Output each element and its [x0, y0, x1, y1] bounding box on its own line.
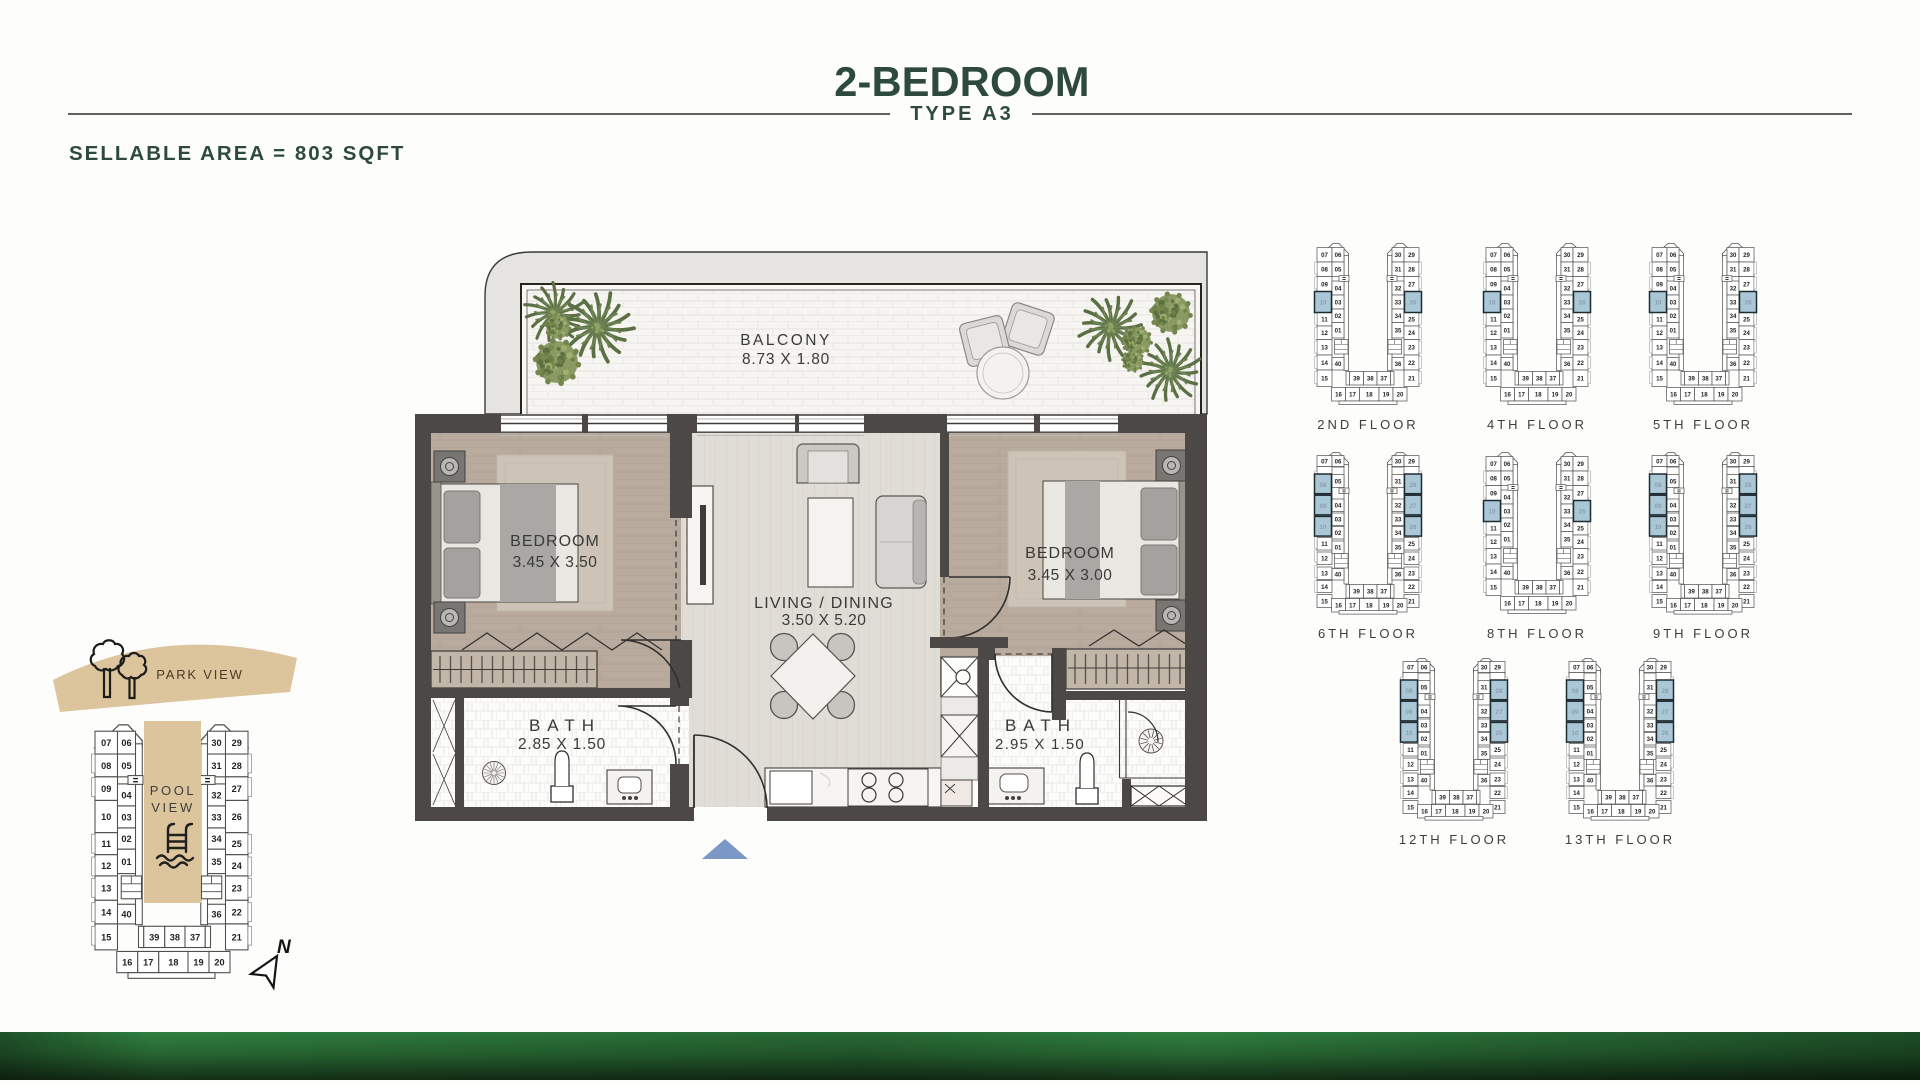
svg-text:BATH: BATH [1005, 716, 1077, 735]
svg-text:2ND FLOOR: 2ND FLOOR [1317, 417, 1418, 432]
svg-text:28: 28 [1495, 688, 1503, 695]
svg-text:26: 26 [1409, 300, 1417, 307]
svg-text:3.45 X 3.00: 3.45 X 3.00 [1028, 567, 1113, 584]
svg-text:10: 10 [1488, 509, 1496, 516]
svg-text:LIVING / DINING: LIVING / DINING [754, 595, 894, 612]
svg-text:28: 28 [1409, 482, 1417, 489]
svg-text:09: 09 [1319, 503, 1327, 510]
svg-text:8TH FLOOR: 8TH FLOOR [1487, 626, 1587, 641]
svg-text:8.73 X 1.80: 8.73 X 1.80 [742, 351, 830, 368]
svg-text:POOL: POOL [150, 783, 197, 798]
svg-text:6TH FLOOR: 6TH FLOOR [1318, 626, 1418, 641]
svg-text:10: 10 [1571, 730, 1579, 737]
svg-text:3.45 X 3.50: 3.45 X 3.50 [513, 554, 598, 571]
svg-text:26: 26 [1661, 730, 1669, 737]
svg-text:BEDROOM: BEDROOM [1025, 545, 1115, 562]
svg-text:10: 10 [1654, 524, 1662, 531]
svg-text:2-BEDROOM: 2-BEDROOM [834, 58, 1089, 105]
svg-text:26: 26 [1744, 300, 1752, 307]
svg-text:09: 09 [1571, 709, 1579, 716]
svg-text:27: 27 [1409, 503, 1417, 510]
svg-text:5TH FLOOR: 5TH FLOOR [1653, 417, 1753, 432]
svg-text:09: 09 [1654, 503, 1662, 510]
svg-text:N: N [277, 937, 292, 958]
svg-text:PARK VIEW: PARK VIEW [156, 667, 243, 682]
svg-text:26: 26 [1409, 524, 1417, 531]
svg-text:10: 10 [1488, 300, 1496, 307]
svg-text:27: 27 [1495, 709, 1503, 716]
svg-text:12TH FLOOR: 12TH FLOOR [1399, 832, 1509, 847]
svg-text:3.50 X 5.20: 3.50 X 5.20 [782, 612, 867, 629]
svg-text:10: 10 [1319, 524, 1327, 531]
svg-text:BATH: BATH [529, 716, 601, 735]
svg-text:BALCONY: BALCONY [740, 332, 832, 349]
svg-text:9TH FLOOR: 9TH FLOOR [1653, 626, 1753, 641]
svg-text:28: 28 [1744, 482, 1752, 489]
svg-text:08: 08 [1571, 688, 1579, 695]
svg-text:26: 26 [1744, 524, 1752, 531]
svg-text:26: 26 [1578, 300, 1586, 307]
svg-text:26: 26 [1578, 509, 1586, 516]
svg-text:10: 10 [1405, 730, 1413, 737]
svg-text:10: 10 [1319, 300, 1327, 307]
svg-text:08: 08 [1654, 482, 1662, 489]
svg-text:26: 26 [1495, 730, 1503, 737]
svg-text:08: 08 [1405, 688, 1413, 695]
svg-text:4TH FLOOR: 4TH FLOOR [1487, 417, 1587, 432]
svg-text:13TH FLOOR: 13TH FLOOR [1565, 832, 1675, 847]
svg-text:BEDROOM: BEDROOM [510, 533, 600, 550]
svg-text:08: 08 [1319, 482, 1327, 489]
svg-text:2.95 X 1.50: 2.95 X 1.50 [995, 736, 1085, 753]
svg-text:27: 27 [1744, 503, 1752, 510]
svg-text:27: 27 [1661, 709, 1669, 716]
svg-text:SELLABLE AREA = 803 SQFT: SELLABLE AREA = 803 SQFT [69, 142, 405, 165]
svg-text:28: 28 [1661, 688, 1669, 695]
svg-text:10: 10 [1654, 300, 1662, 307]
svg-text:TYPE A3: TYPE A3 [910, 103, 1014, 125]
svg-text:09: 09 [1405, 709, 1413, 716]
svg-text:VIEW: VIEW [151, 800, 195, 815]
svg-text:2.85 X 1.50: 2.85 X 1.50 [518, 736, 606, 753]
